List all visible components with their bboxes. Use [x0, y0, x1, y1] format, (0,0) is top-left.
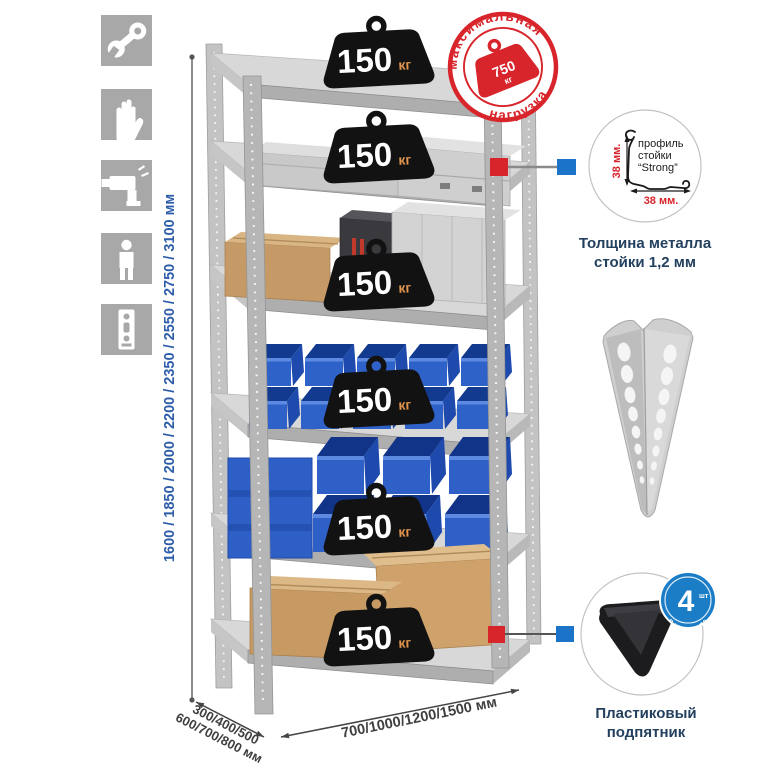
profile-label-line1: профиль	[638, 138, 684, 150]
svg-text:150: 150	[336, 40, 393, 80]
svg-text:150: 150	[336, 507, 393, 547]
svg-text:150: 150	[336, 263, 393, 303]
profile-dim-vertical: 38 мм.	[611, 144, 623, 179]
drill-icon	[101, 160, 152, 211]
profile-dim-horizontal: 38 мм.	[644, 195, 679, 207]
foot-caption-line2: подпятник	[607, 724, 686, 741]
profile-label-line3: “Strong”	[638, 162, 678, 174]
badge-unit: шт	[699, 593, 709, 600]
infographic-svg: 1600 / 1850 / 2000 / 2200 / 2350 / 2550 …	[0, 0, 765, 765]
svg-text:150: 150	[336, 135, 393, 175]
foot-caption-line1: Пластиковый	[595, 705, 696, 722]
svg-text:кг: кг	[398, 634, 412, 651]
assembly-icons	[101, 15, 152, 355]
blue-marker-bottom	[556, 626, 574, 642]
svg-text:150: 150	[336, 380, 393, 420]
profile-caption-line1: Толщина металла	[579, 235, 712, 252]
height-dimension: 1600 / 1850 / 2000 / 2200 / 2350 / 2550 …	[162, 54, 195, 702]
badge-number: 4	[678, 585, 695, 618]
person-icon	[101, 233, 152, 284]
profile-label-line2: стойки	[638, 150, 672, 162]
svg-text:кг: кг	[398, 151, 412, 168]
svg-text:кг: кг	[398, 56, 412, 73]
gloves-icon	[101, 89, 152, 143]
rack-back-left-post	[206, 44, 232, 688]
red-marker-bottom	[488, 626, 505, 643]
rack-post-icon	[101, 304, 152, 355]
foot-detail: Пластиковый подпятник 4 шт в комплекте	[581, 572, 716, 741]
included-count-badge: 4 шт в комплекте	[660, 572, 716, 633]
svg-text:кг: кг	[398, 396, 412, 413]
width-dimension: 700/1000/1200/1500 мм	[281, 689, 519, 742]
load-badge-1: 150 кг	[321, 16, 435, 89]
wrench-icon	[101, 15, 152, 66]
height-dimension-label: 1600 / 1850 / 2000 / 2200 / 2350 / 2550 …	[162, 194, 178, 562]
profile-detail: профиль стойки “Strong” 38 мм. 38 мм. То…	[579, 110, 712, 271]
corner-post-image	[603, 319, 693, 517]
svg-text:кг: кг	[398, 523, 412, 540]
profile-caption-line2: стойки 1,2 мм	[594, 254, 696, 271]
load-badge-2: 150 кг	[321, 111, 435, 184]
red-marker-top	[490, 158, 508, 176]
blue-marker-top	[557, 159, 576, 175]
width-dimension-label: 700/1000/1200/1500 мм	[340, 694, 499, 741]
svg-text:кг: кг	[398, 279, 412, 296]
product-infographic: 1600 / 1850 / 2000 / 2200 / 2350 / 2550 …	[0, 0, 765, 765]
max-load-stamp: максимальная нагрузка 750 кг	[430, 0, 575, 140]
svg-text:150: 150	[336, 618, 393, 658]
